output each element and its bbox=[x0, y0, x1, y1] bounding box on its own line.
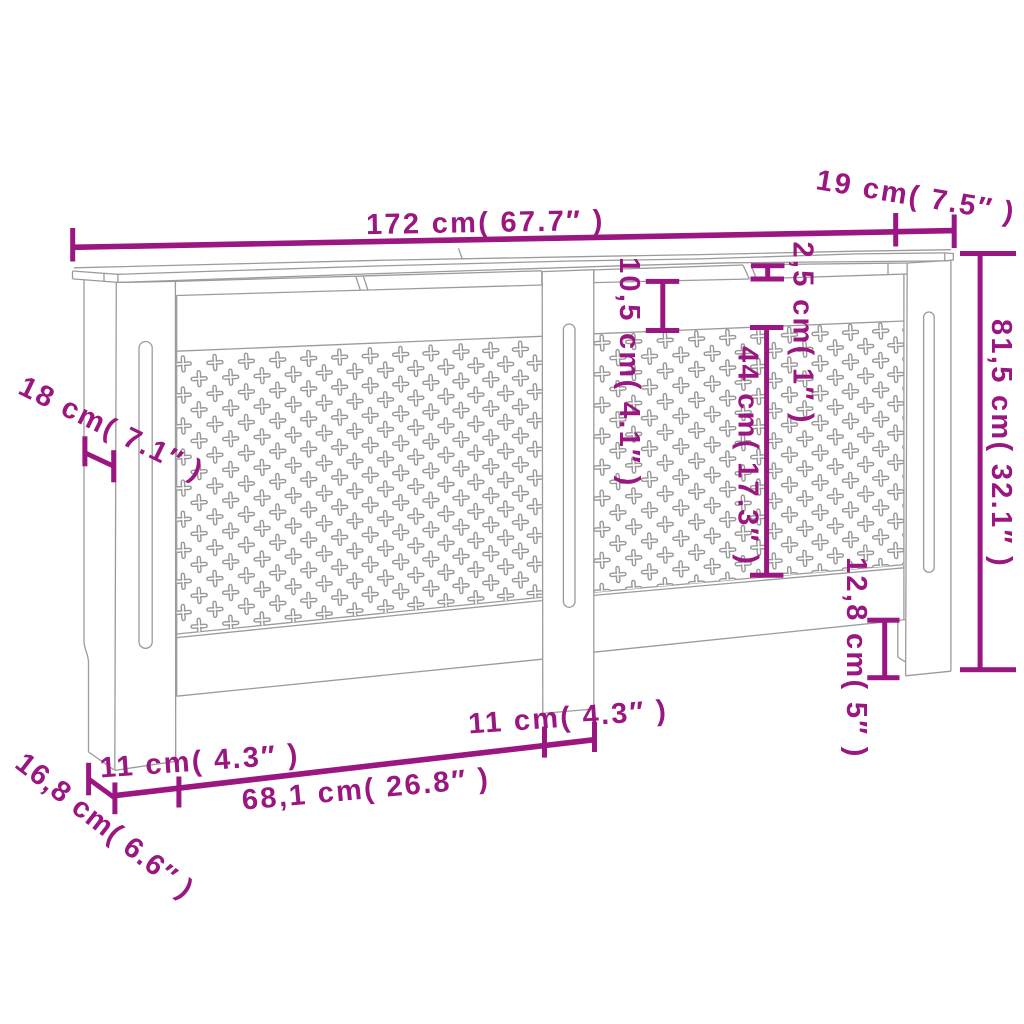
svg-text:12,8 cm( 5″ ): 12,8 cm( 5″ ) bbox=[840, 557, 872, 759]
svg-text:2,5 cm( 1″ ): 2,5 cm( 1″ ) bbox=[787, 242, 819, 425]
svg-text:81,5 cm( 32.1″ ): 81,5 cm( 32.1″ ) bbox=[985, 319, 1017, 568]
svg-text:10,5 cm( 4.1″ ): 10,5 cm( 4.1″ ) bbox=[613, 257, 645, 488]
svg-text:44 cm( 17.3″ ): 44 cm( 17.3″ ) bbox=[732, 346, 764, 566]
svg-text:172 cm( 67.7″ ): 172 cm( 67.7″ ) bbox=[366, 205, 605, 241]
